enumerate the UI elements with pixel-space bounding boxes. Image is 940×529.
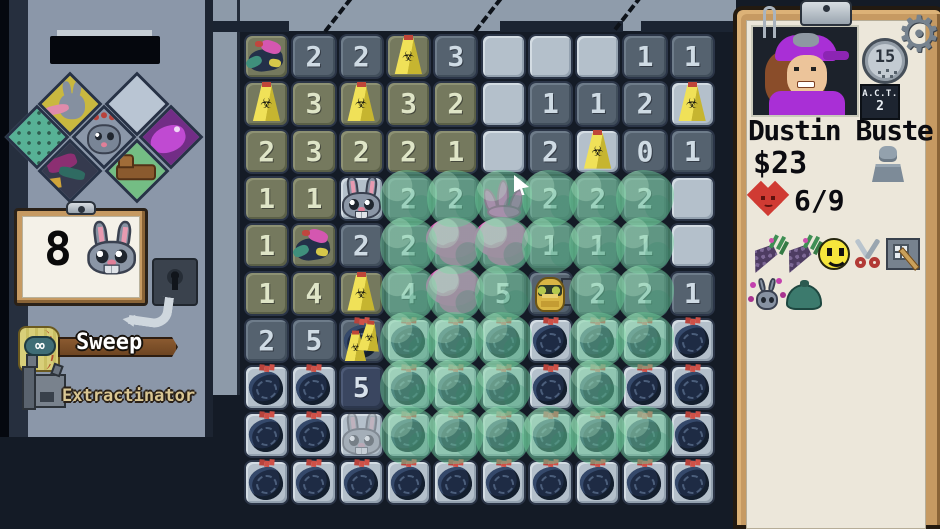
grid-cell-r8c6[interactable] [480, 364, 527, 411]
grid-cell-r1c8[interactable] [574, 33, 621, 80]
grid-cell-r9c8[interactable] [574, 411, 621, 458]
mine-count: 1 [669, 33, 716, 80]
grid-cell-r6c2[interactable]: 4 [290, 270, 337, 317]
hazard-sign-icon: ☣ [346, 275, 377, 311]
grid-cell-r5c9[interactable]: 1 [621, 222, 668, 269]
grid-cell-r6c3[interactable]: ☣ [338, 270, 385, 317]
mine-count: 1 [574, 80, 621, 127]
mine-count: 3 [290, 128, 337, 175]
grid-cell-r3c1[interactable]: 2 [243, 128, 290, 175]
grid-cell-r7c5[interactable] [432, 317, 479, 364]
rabbit-icon [84, 222, 140, 296]
game-screen: 22☣311☣3☣32112☣232212☣011122 2221 22 111… [0, 0, 940, 529]
mine-count: 5 [338, 364, 385, 411]
grid-cell-r5c2[interactable] [290, 222, 337, 269]
grid-cell-r8c5[interactable] [432, 364, 479, 411]
grid-cell-r9c2[interactable] [290, 411, 337, 458]
hook-icon[interactable] [128, 292, 174, 330]
grid-cell-r1c6[interactable] [480, 33, 527, 80]
grid-cell-r10c3[interactable] [338, 459, 385, 506]
locker-panel: 8 ∞ Sweep Extractinator [0, 0, 213, 437]
grid-cell-r6c7[interactable] [527, 270, 574, 317]
item-flower-rabbit-icon[interactable] [748, 276, 782, 312]
mine-count: 2 [621, 80, 668, 127]
grid-cell-r3c8[interactable]: ☣ [574, 128, 621, 175]
mine-count: 1 [669, 270, 716, 317]
grid-cell-r3c10[interactable]: 1 [669, 128, 716, 175]
grid-cell-r7c9[interactable] [621, 317, 668, 364]
mine-count: 1 [621, 33, 668, 80]
mine-count: 1 [243, 222, 290, 269]
tile [670, 176, 715, 221]
rabbit-icon [341, 413, 383, 457]
tile [575, 34, 620, 79]
grid-cell-r8c9[interactable] [621, 364, 668, 411]
mine-count: 2 [338, 33, 385, 80]
mine-count: 2 [243, 317, 290, 364]
grid-cell-r10c2[interactable] [290, 459, 337, 506]
grid-cell-r4c4[interactable]: 2 [385, 175, 432, 222]
sludge-overlay [616, 406, 673, 463]
mine-grid: 22☣311☣3☣32112☣232212☣011122 2221 22 111… [243, 33, 716, 506]
health-value: 6/9 [794, 184, 845, 217]
mine-count: 1 [290, 175, 337, 222]
grid-cell-r9c6[interactable] [480, 411, 527, 458]
grid-cell-r10c9[interactable] [621, 459, 668, 506]
grid-cell-r8c2[interactable] [290, 364, 337, 411]
shelf-band [213, 21, 289, 32]
wall-corner [213, 0, 240, 395]
grid-cell-r5c1[interactable]: 1 [243, 222, 290, 269]
mine-count: 3 [290, 80, 337, 127]
act-value: 2 [862, 99, 898, 114]
grid-cell-r4c3[interactable] [338, 175, 385, 222]
grid-cell-r8c7[interactable] [527, 364, 574, 411]
grid-cell-r1c1[interactable] [243, 33, 290, 80]
grid-cell-r3c5[interactable]: 1 [432, 128, 479, 175]
item-carrot-icon[interactable] [784, 236, 818, 272]
grid-cell-r4c7[interactable]: 2 [527, 175, 574, 222]
grid-cell-r1c2[interactable]: 2 [290, 33, 337, 80]
mine-count: 1 [243, 175, 290, 222]
grid-cell-r8c3[interactable]: 5 [338, 364, 385, 411]
grid-cell-r10c5[interactable] [432, 459, 479, 506]
item-smiley-face-icon[interactable] [818, 236, 852, 272]
mine-count: 5 [290, 317, 337, 364]
grid-cell-r10c1[interactable] [243, 459, 290, 506]
grid-cell-r2c8[interactable]: 1 [574, 80, 621, 127]
act-label: A.C.T. [862, 89, 898, 99]
grid-cell-r5c3[interactable]: 2 [338, 222, 385, 269]
gear-icon[interactable]: ⚙ [893, 8, 940, 60]
grid-cell-r10c7[interactable] [527, 459, 574, 506]
grid-cell-r2c3[interactable]: ☣ [338, 80, 385, 127]
grid-cell-r1c3[interactable]: 2 [338, 33, 385, 80]
grid-cell-r5c4[interactable]: 2 [385, 222, 432, 269]
grid-cell-r4c9[interactable]: 2 [621, 175, 668, 222]
grid-cell-r5c7[interactable]: 1 [527, 222, 574, 269]
grid-cell-r3c7[interactable]: 2 [527, 128, 574, 175]
item-scissors-icon[interactable] [852, 236, 886, 272]
grid-cell-r6c6[interactable]: 5 [480, 270, 527, 317]
mine-count: 2 [385, 128, 432, 175]
item-carrot-icon[interactable] [750, 236, 784, 272]
junk-pile-icon [245, 37, 289, 77]
infinity-badge: ∞ [24, 336, 56, 356]
item-green-bag-icon[interactable] [786, 276, 820, 312]
grid-cell-r4c2[interactable]: 1 [290, 175, 337, 222]
statue-icon [872, 146, 904, 182]
grid-cell-r3c6[interactable] [480, 128, 527, 175]
mine-count: 3 [385, 80, 432, 127]
grid-cell-r10c6[interactable] [480, 459, 527, 506]
mine-count: 1 [432, 128, 479, 175]
grid-cell-r4c1[interactable]: 1 [243, 175, 290, 222]
tile [481, 34, 526, 79]
grid-cell-r6c8[interactable]: 2 [574, 270, 621, 317]
grid-cell-r2c7[interactable]: 1 [527, 80, 574, 127]
mine-count: 4 [290, 270, 337, 317]
rabbit-icon [341, 177, 383, 221]
grid-cell-r2c9[interactable]: 2 [621, 80, 668, 127]
grid-cell-r3c3[interactable]: 2 [338, 128, 385, 175]
grid-cell-r7c1[interactable]: 2 [243, 317, 290, 364]
grid-cell-r6c10[interactable]: 1 [669, 270, 716, 317]
grid-cell-r4c5[interactable]: 2 [432, 175, 479, 222]
grid-cell-r8c8[interactable] [574, 364, 621, 411]
clipboard-clip-icon [800, 0, 852, 26]
grid-cell-r5c10[interactable] [669, 222, 716, 269]
grid-cell-r3c4[interactable]: 2 [385, 128, 432, 175]
hazard-sign-icon: ☣ [582, 133, 613, 169]
mine-count: 2 [243, 128, 290, 175]
extractinator-label: Extractinator [62, 386, 195, 406]
hazard-sign-icon: ☣ [677, 85, 708, 121]
item-window-brush-icon[interactable] [886, 236, 920, 272]
golden-rabbit-icon [532, 273, 572, 315]
grid-cell-r7c2[interactable]: 5 [290, 317, 337, 364]
tile [481, 81, 526, 126]
grid-cell-r7c7[interactable] [527, 317, 574, 364]
clipboard-clip-icon [66, 201, 96, 215]
hazard-sign-icon: ☣ [251, 85, 282, 121]
grid-cell-r7c4[interactable] [385, 317, 432, 364]
grid-cell-r2c10[interactable]: ☣ [669, 80, 716, 127]
mine-count: 3 [432, 33, 479, 80]
grid-cell-r9c7[interactable] [527, 411, 574, 458]
mine-count: 0 [621, 128, 668, 175]
shelf-band [641, 21, 736, 32]
character-name: Dustin Buste [748, 114, 940, 146]
tile [481, 129, 526, 174]
sweep-label: Sweep [76, 330, 142, 355]
mine-count: 2 [432, 80, 479, 127]
locker-edge [0, 0, 9, 437]
hazard-sign-icon: ☣ [393, 38, 424, 74]
mine-count: 1 [243, 270, 290, 317]
grid-cell-r7c3[interactable]: ☣☣ [338, 317, 385, 364]
grid-cell-r9c3[interactable] [338, 411, 385, 458]
grid-cell-r9c10[interactable] [669, 411, 716, 458]
grid-cell-r4c10[interactable] [669, 175, 716, 222]
tile [528, 34, 573, 79]
rabbit-quota-count: 8 [30, 222, 86, 276]
grid-cell-r2c6[interactable] [480, 80, 527, 127]
grid-cell-r3c2[interactable]: 3 [290, 128, 337, 175]
grid-cell-r3c9[interactable]: 0 [621, 128, 668, 175]
grid-cell-r6c1[interactable]: 1 [243, 270, 290, 317]
grid-cell-r10c8[interactable] [574, 459, 621, 506]
grid-cell-r9c4[interactable] [385, 411, 432, 458]
grid-cell-r7c6[interactable] [480, 317, 527, 364]
mine-count: 2 [527, 128, 574, 175]
grid-cell-r2c2[interactable]: 3 [290, 80, 337, 127]
grid-cell-r10c10[interactable] [669, 459, 716, 506]
grid-cell-r6c5[interactable] [432, 270, 479, 317]
grid-cell-r10c4[interactable] [385, 459, 432, 506]
grid-cell-r1c7[interactable] [527, 33, 574, 80]
mine-count: 1 [669, 128, 716, 175]
grid-cell-r5c6[interactable] [480, 222, 527, 269]
mine-count: 1 [527, 80, 574, 127]
grid-cell-r1c5[interactable]: 3 [432, 33, 479, 80]
hazard-sign-icon: ☣ [346, 85, 377, 121]
grid-cell-r6c9[interactable]: 2 [621, 270, 668, 317]
character-portrait [751, 25, 859, 117]
mine-count: 2 [338, 222, 385, 269]
grid-cell-r6c4[interactable]: 4 [385, 270, 432, 317]
grid-cell-r1c9[interactable]: 1 [621, 33, 668, 80]
hazard-sign-icon: ☣ [356, 322, 383, 352]
grid-cell-r5c5[interactable] [432, 222, 479, 269]
grid-cell-r5c8[interactable]: 1 [574, 222, 621, 269]
mine-count: 2 [290, 33, 337, 80]
grid-cell-r7c10[interactable] [669, 317, 716, 364]
grid-cell-r8c4[interactable] [385, 364, 432, 411]
money-value: $23 [753, 146, 807, 181]
mine-count: 2 [338, 128, 385, 175]
grid-cell-r8c10[interactable] [669, 364, 716, 411]
grid-cell-r1c10[interactable]: 1 [669, 33, 716, 80]
grid-cell-r2c5[interactable]: 2 [432, 80, 479, 127]
paperclip-icon [763, 6, 776, 38]
grid-cell-r2c4[interactable]: 3 [385, 80, 432, 127]
grid-cell-r8c1[interactable] [243, 364, 290, 411]
heart-icon [752, 188, 786, 218]
shelf-band [500, 21, 623, 32]
grid-cell-r9c5[interactable] [432, 411, 479, 458]
grid-cell-r9c9[interactable] [621, 411, 668, 458]
tile [670, 223, 715, 268]
grid-cell-r1c4[interactable]: ☣ [385, 33, 432, 80]
junk-pile-icon [292, 226, 336, 266]
grid-cell-r7c8[interactable] [574, 317, 621, 364]
grid-cell-r2c1[interactable]: ☣ [243, 80, 290, 127]
grid-cell-r4c8[interactable]: 2 [574, 175, 621, 222]
nameplate [50, 36, 160, 64]
grid-cell-r9c1[interactable] [243, 411, 290, 458]
